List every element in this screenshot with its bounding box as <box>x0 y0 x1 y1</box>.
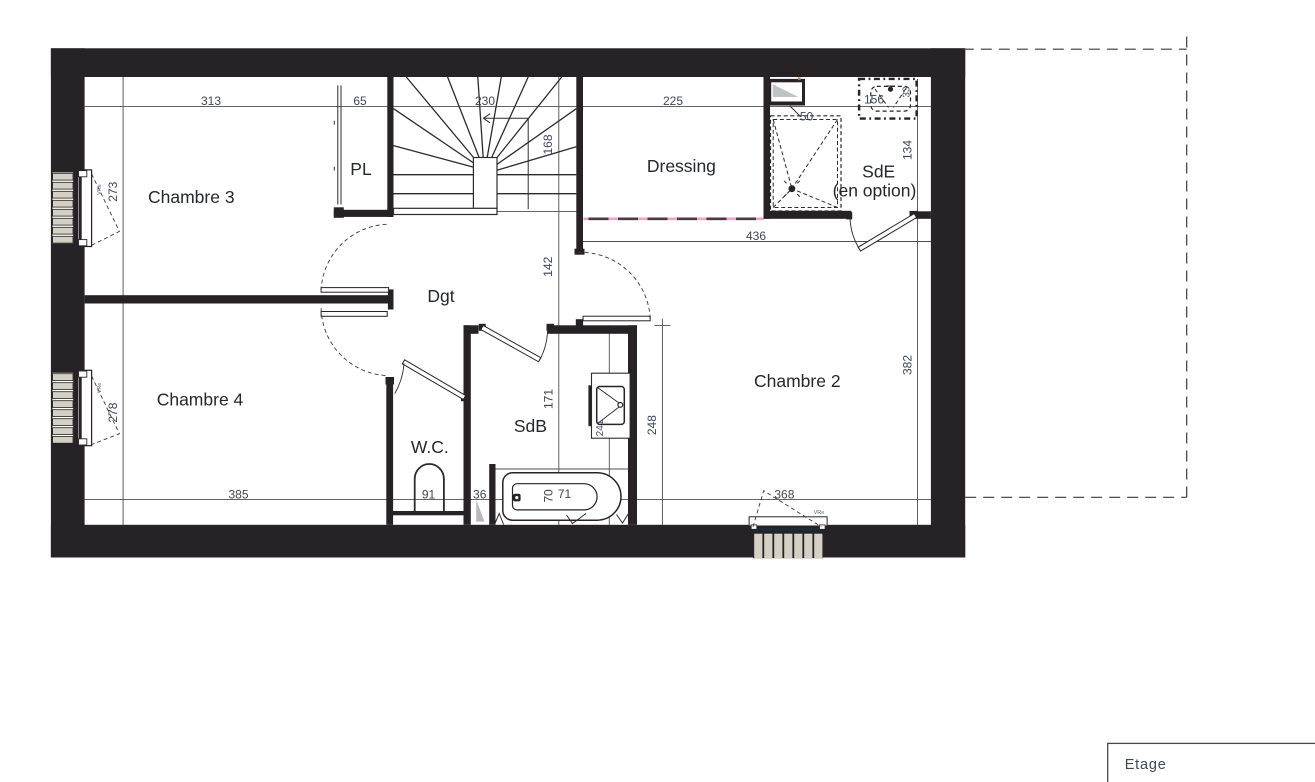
svg-text:313: 313 <box>201 94 221 108</box>
svg-text:156: 156 <box>864 93 884 107</box>
svg-text:168: 168 <box>541 134 555 154</box>
svg-text:368: 368 <box>774 487 794 501</box>
svg-text:171: 171 <box>542 389 556 409</box>
svg-text:SdB: SdB <box>514 416 547 436</box>
svg-text:VRe: VRe <box>97 383 103 394</box>
svg-text:VRe: VRe <box>97 184 103 195</box>
svg-text:SdE: SdE <box>862 162 895 182</box>
svg-text:Chambre 3: Chambre 3 <box>148 187 235 207</box>
svg-text:(en option): (en option) <box>833 181 917 201</box>
svg-text:PL: PL <box>350 159 372 179</box>
svg-text:Chambre 4: Chambre 4 <box>157 390 244 410</box>
svg-text:91: 91 <box>422 487 436 501</box>
svg-text:278: 278 <box>106 402 120 422</box>
svg-text:Chambre 2: Chambre 2 <box>754 371 841 391</box>
svg-text:142: 142 <box>541 256 555 276</box>
svg-text:VRe: VRe <box>814 510 825 516</box>
svg-text:230: 230 <box>475 94 495 108</box>
svg-text:241: 241 <box>595 419 606 436</box>
svg-text:Dressing: Dressing <box>647 156 716 176</box>
svg-text:248: 248 <box>645 415 659 435</box>
svg-text:70: 70 <box>542 489 556 503</box>
svg-text:382: 382 <box>901 355 915 375</box>
svg-text:225: 225 <box>663 94 683 108</box>
svg-text:W.C.: W.C. <box>411 437 449 457</box>
svg-text:71: 71 <box>558 487 572 501</box>
svg-text:273: 273 <box>106 181 120 201</box>
svg-text:65: 65 <box>353 94 367 108</box>
svg-text:385: 385 <box>228 487 248 501</box>
svg-text:134: 134 <box>901 140 915 160</box>
svg-text:Etage: Etage <box>1125 757 1167 773</box>
svg-text:436: 436 <box>746 229 766 243</box>
svg-text:Dgt: Dgt <box>427 286 454 306</box>
svg-text:36: 36 <box>473 487 487 501</box>
svg-text:33: 33 <box>902 86 913 98</box>
svg-text:50: 50 <box>800 110 814 124</box>
